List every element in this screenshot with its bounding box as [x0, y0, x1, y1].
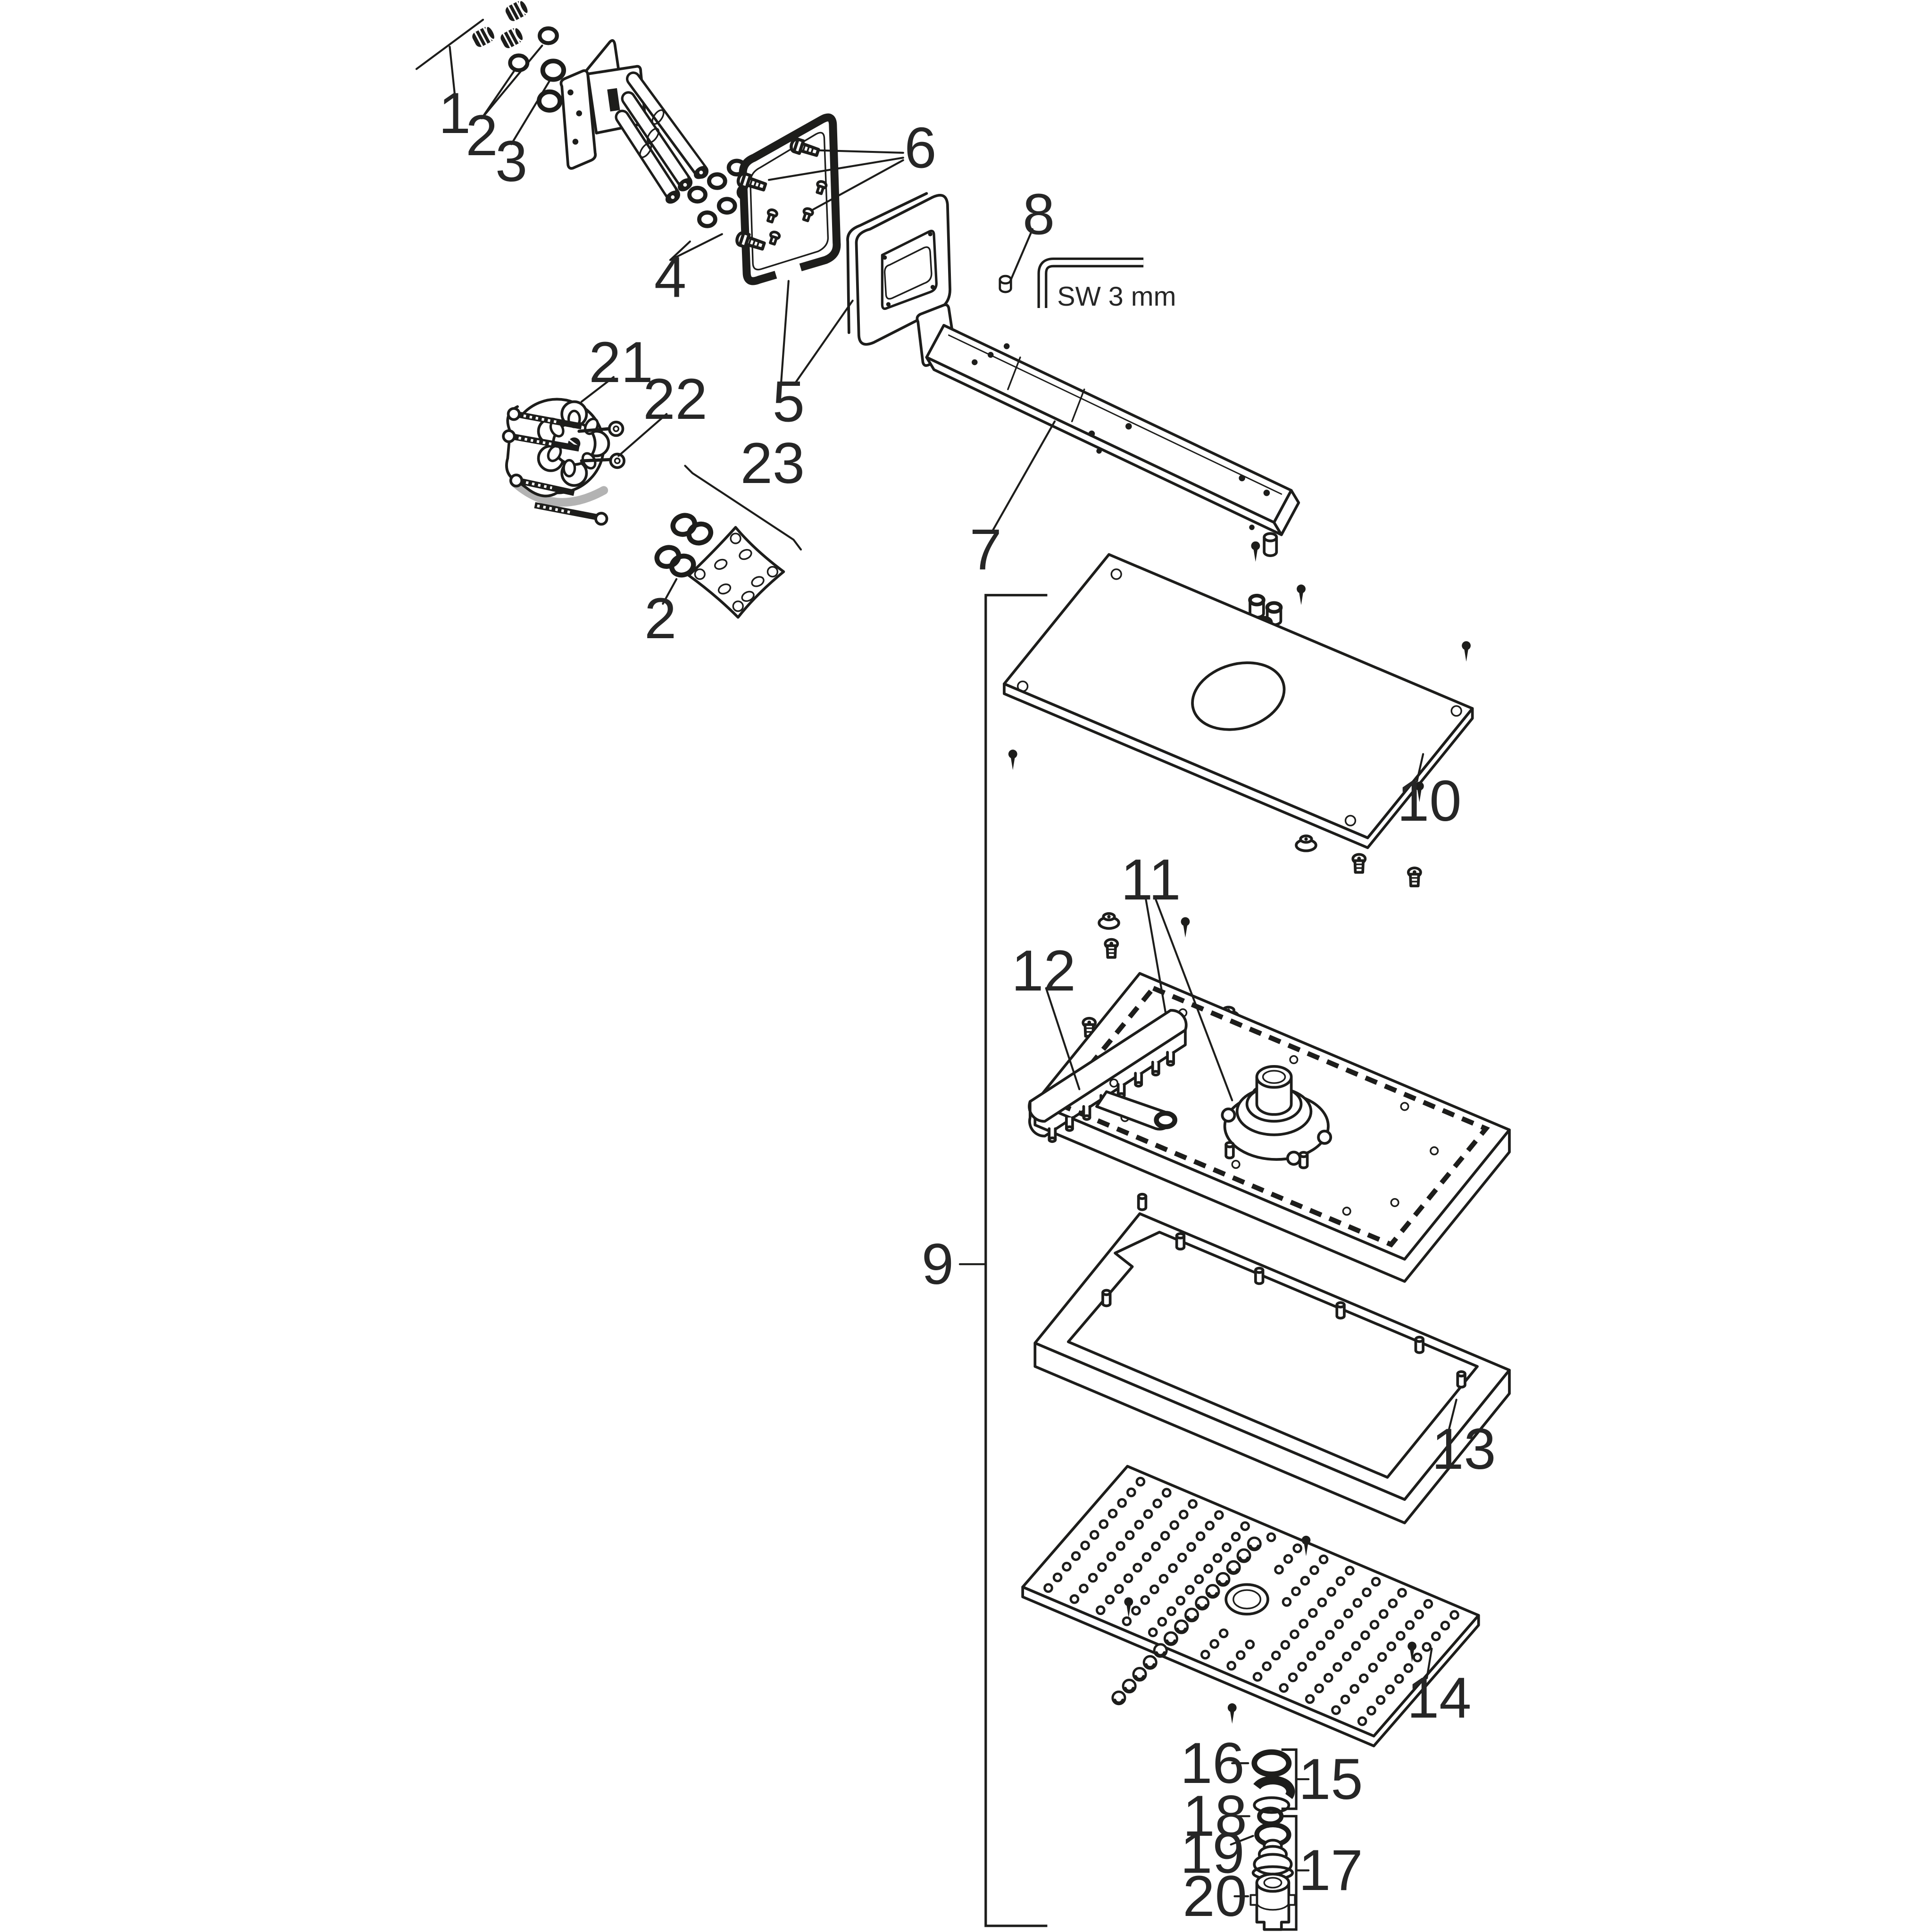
callout-8: 8	[1023, 182, 1055, 247]
callout-23: 23	[741, 431, 805, 496]
callout-22: 22	[643, 367, 708, 432]
part-3-orings	[539, 61, 564, 110]
callout-13: 13	[1432, 1417, 1496, 1482]
callout-7: 7	[970, 517, 1002, 582]
callout-9: 9	[922, 1232, 954, 1297]
part-1-sealing-plugs	[471, 0, 531, 50]
part-16-oring	[1254, 1752, 1289, 1774]
callout-12: 12	[1011, 939, 1076, 1003]
callout-4: 4	[654, 245, 686, 310]
callout-6: 6	[904, 116, 936, 180]
tool-size-note: SW 3 mm	[1057, 282, 1176, 312]
callout-10: 10	[1397, 769, 1462, 833]
part-20-connector-housing	[1250, 1874, 1295, 1930]
part-5-back-plate	[743, 117, 837, 281]
part-4-mounting-bracket-with-pipes	[561, 41, 755, 226]
callout-14: 14	[1407, 1666, 1472, 1730]
callout-17: 17	[1299, 1838, 1363, 1903]
part-11-shower-body	[1035, 974, 1509, 1282]
arm-outlet-stub	[1264, 533, 1276, 556]
callout-5: 5	[773, 369, 805, 434]
exploded-parts-diagram: SW 3 mm	[0, 0, 1932, 1932]
callout-2: 2	[466, 103, 498, 168]
callout-20: 20	[1183, 1864, 1247, 1929]
callout-11: 11	[1121, 848, 1181, 912]
callout-3: 3	[495, 129, 527, 194]
part-18-oring	[1259, 1809, 1282, 1824]
part-10-cover-plate	[1004, 541, 1473, 938]
part-8-grub-screw	[1000, 276, 1011, 292]
part-9-bracket	[986, 595, 1048, 1926]
callout-2-dup: 2	[644, 586, 676, 651]
callout-15: 15	[1299, 1747, 1363, 1812]
